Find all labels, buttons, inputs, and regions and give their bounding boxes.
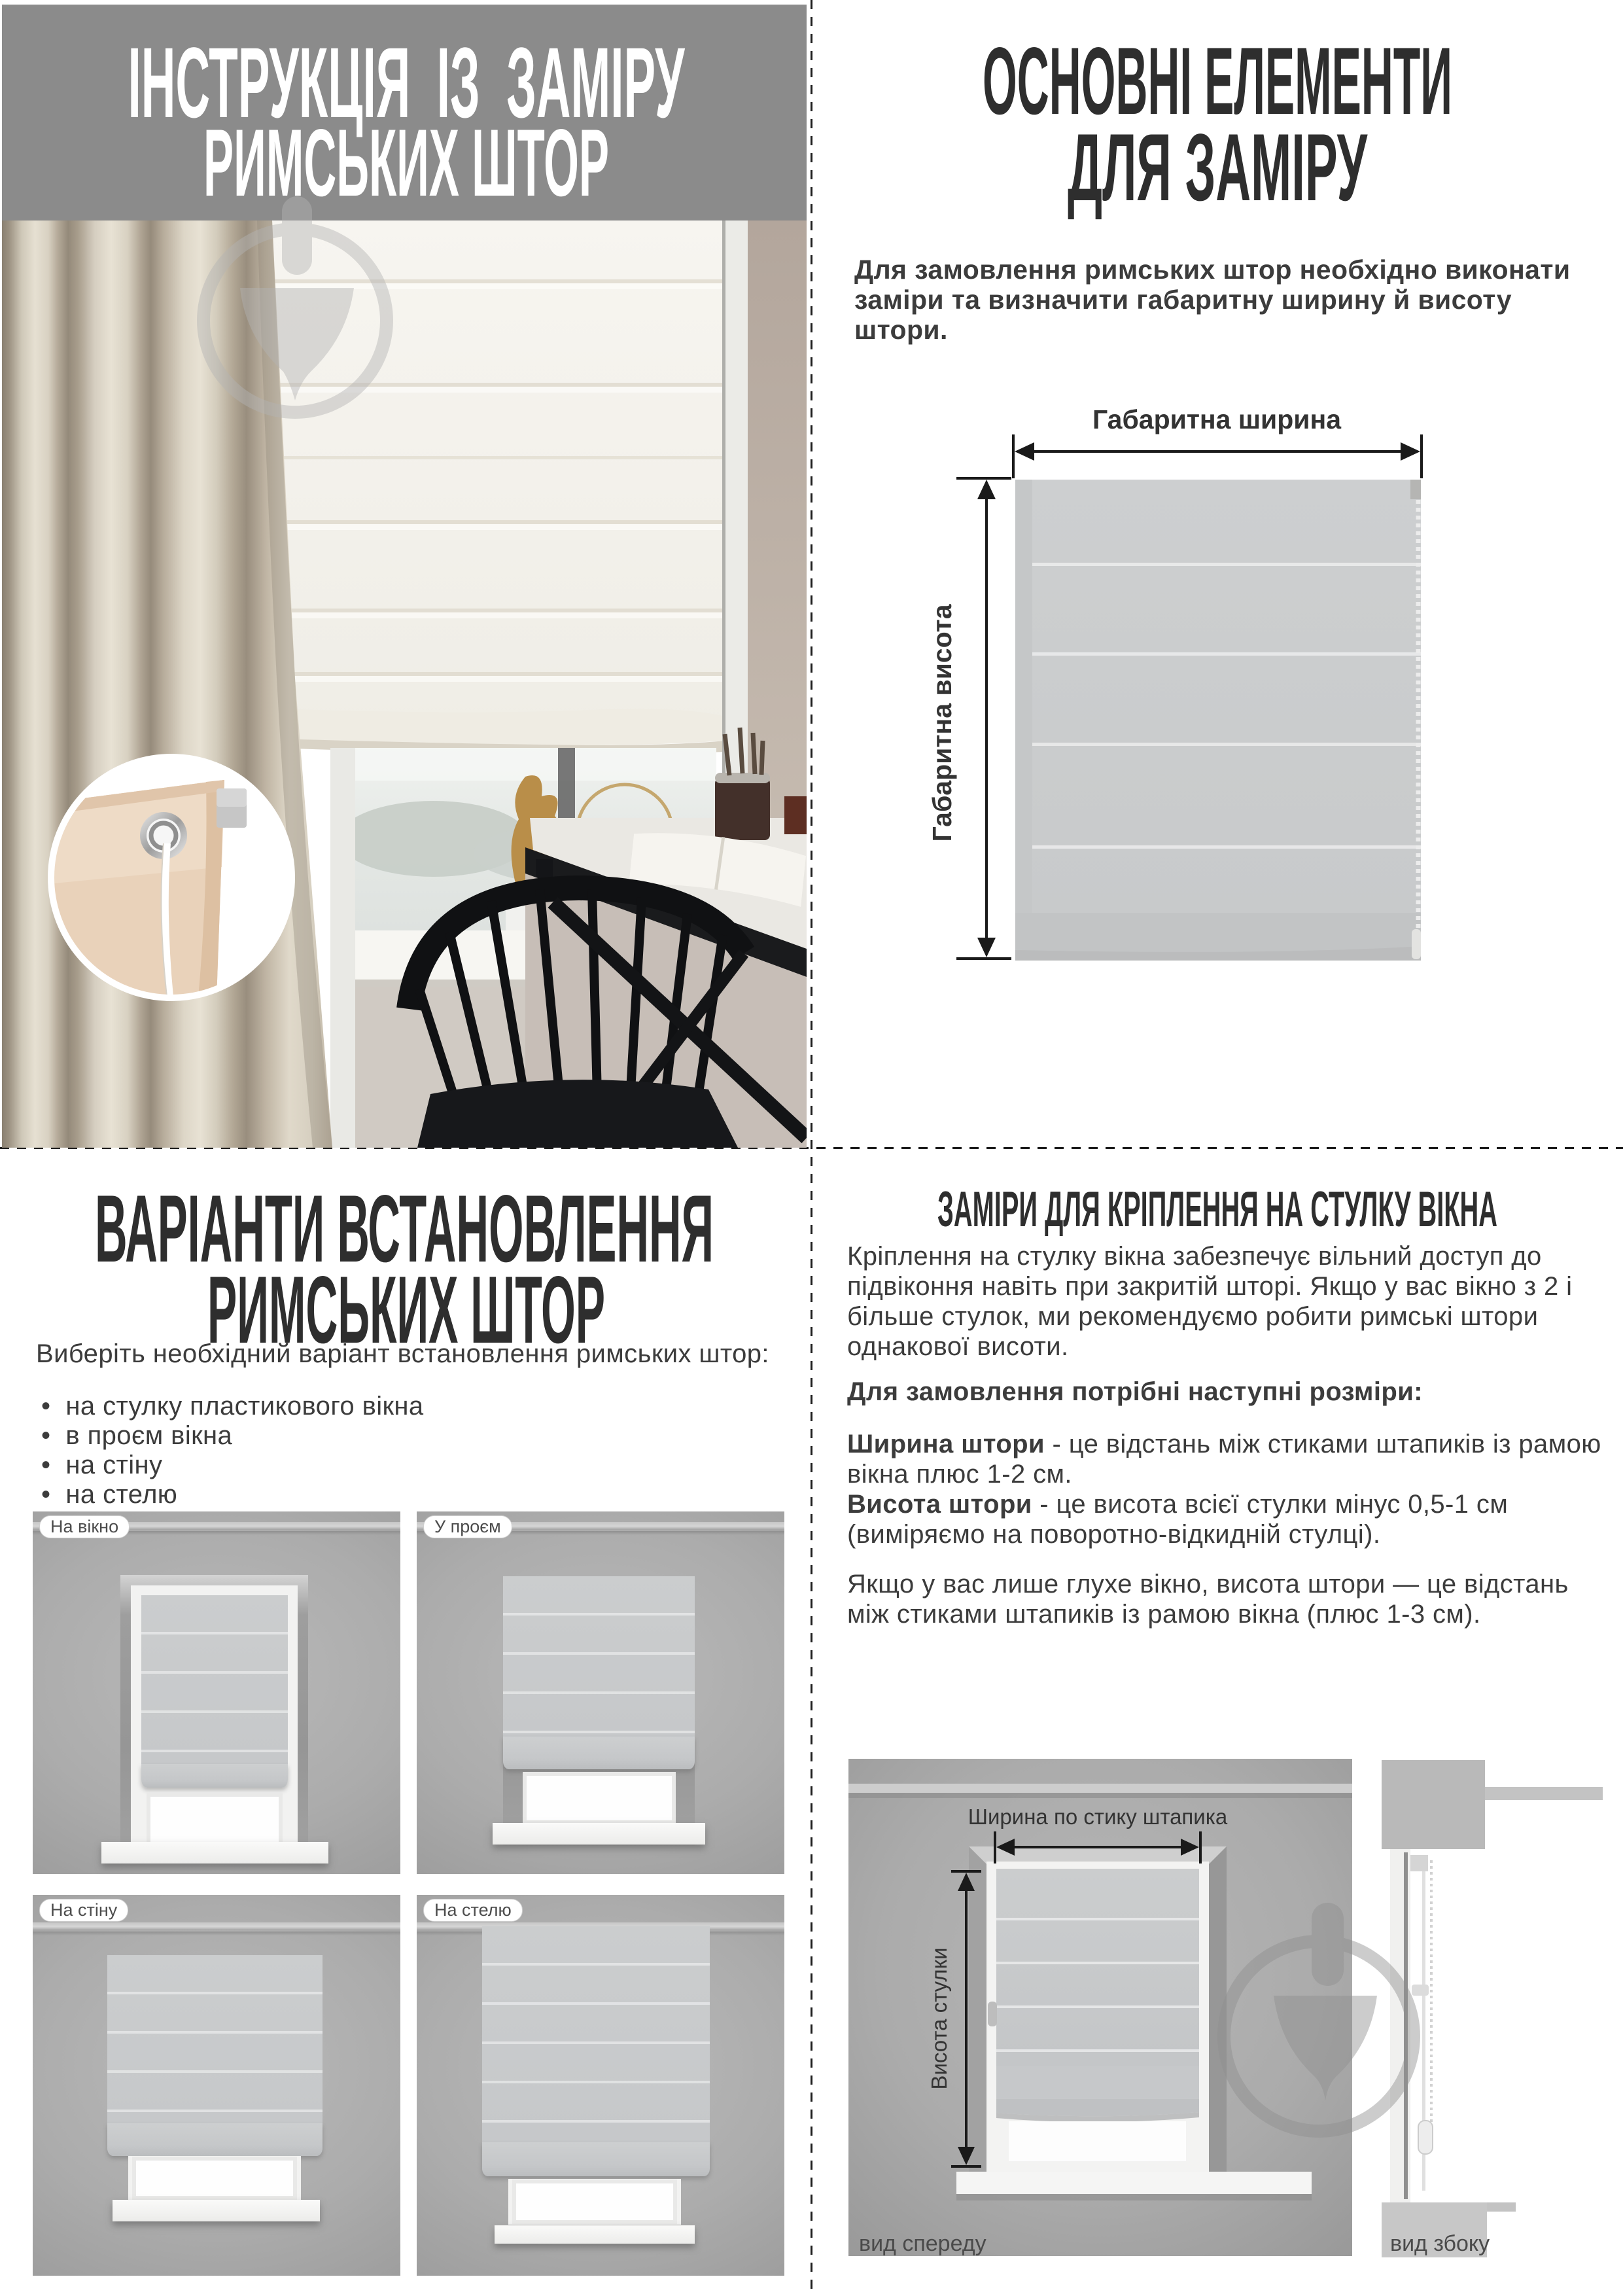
svg-text:Висота стулки: Висота стулки — [927, 1947, 951, 2089]
svg-text:вид збоку: вид збоку — [1390, 2231, 1490, 2256]
svg-text:Габаритна ширина: Габаритна ширина — [1092, 404, 1342, 434]
svg-text:ЗАМІРИ ДЛЯ КРІПЛЕННЯ НА СТУЛКУ: ЗАМІРИ ДЛЯ КРІПЛЕННЯ НА СТУЛКУ ВІКНА — [937, 1182, 1497, 1237]
svg-text:Габаритна висота: Габаритна висота — [927, 603, 957, 841]
svg-text:Ширина по стику штапика: Ширина по стику штапика — [968, 1805, 1228, 1829]
svg-text:ДЛЯ ЗАМІРУ: ДЛЯ ЗАМІРУ — [1068, 114, 1368, 221]
svg-text:вид спереду: вид спереду — [859, 2231, 986, 2256]
